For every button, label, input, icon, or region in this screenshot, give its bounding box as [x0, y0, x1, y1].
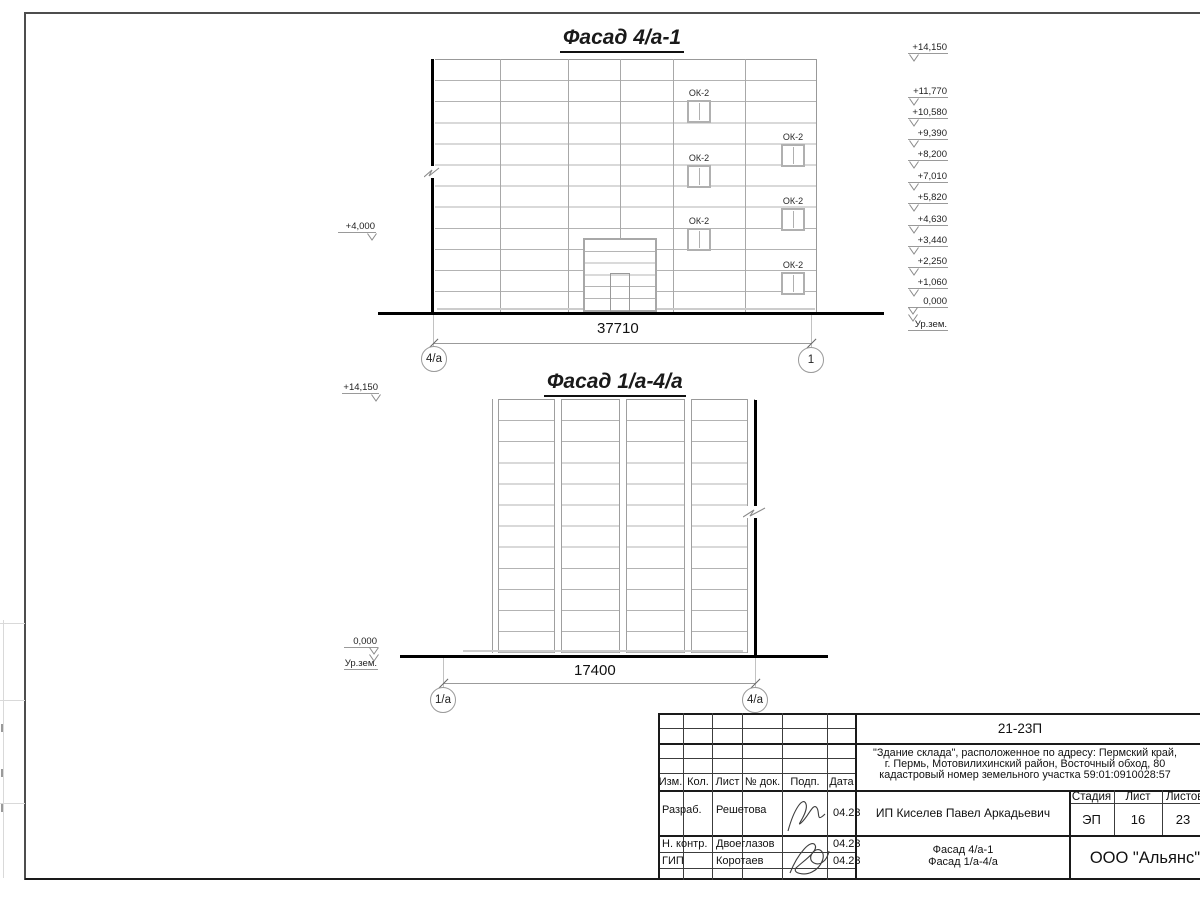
margin-stamp-text-mark [1, 769, 3, 777]
window-type-label: ОК-2 [683, 153, 715, 163]
elevation-mark: +5,820 [908, 193, 948, 212]
frame-top-border [25, 12, 1200, 14]
elevation-mark-left: +4,000 [338, 222, 376, 241]
col-izm: Изм. [658, 776, 683, 788]
margin-stamp-text-mark [1, 804, 3, 812]
facade1-title: Фасад 4/а-1 [560, 27, 684, 53]
col-list: Лист [713, 776, 742, 788]
window-ok2 [687, 228, 711, 251]
elevation-mark: +14,150 [908, 43, 948, 62]
signature-developer [784, 793, 828, 835]
window-type-label: ОК-2 [777, 196, 809, 206]
margin-stamp-text-mark [1, 724, 3, 732]
window-ok2 [687, 100, 711, 123]
window-type-label: ОК-2 [777, 260, 809, 270]
axis-marker-1: 1 [798, 347, 824, 373]
client-name: ИП Киселев Павел Аркадьевич [857, 806, 1069, 820]
facade1-dimension-line [433, 343, 812, 344]
facade1-column-line [745, 59, 746, 312]
facade2-corner-line [754, 400, 758, 508]
axis-marker-1a: 1/а [430, 687, 456, 713]
project-code: 21-23П [940, 721, 1100, 736]
margin-stamp-line [3, 620, 4, 878]
sheet-label: Лист [1114, 791, 1162, 803]
titleblock-line [712, 713, 713, 880]
role-name: Решетова [716, 804, 766, 816]
role-name: Двоеглазов [716, 838, 774, 850]
elevation-mark: +7,010 [908, 172, 948, 191]
elevation-mark: +1,060 [908, 278, 948, 297]
facade2-ground-line [400, 655, 828, 659]
facade2-corner-line [754, 518, 758, 656]
col-dok: № док. [743, 776, 782, 788]
sheet-title-line1: Фасад 4/а-1 [857, 844, 1069, 856]
facade2-top-elevation: +14,150 [342, 383, 379, 402]
elevation-mark: +11,770 [908, 87, 948, 106]
col-kol: Кол. [684, 776, 712, 788]
col-data: Дата [828, 776, 855, 788]
organization-name: ООО "Альянс" [1071, 849, 1200, 868]
window-type-label: ОК-2 [777, 132, 809, 142]
facade2-ground-label: Ур.зем. [344, 659, 378, 670]
break-symbol [743, 506, 767, 518]
elevation-mark: +10,580 [908, 108, 948, 127]
facade2-base-line [463, 650, 743, 652]
break-symbol [424, 166, 442, 178]
margin-stamp-line [0, 700, 25, 701]
window-type-label: ОК-2 [683, 216, 715, 226]
window-type-label: ОК-2 [683, 88, 715, 98]
window-ok2 [781, 272, 805, 295]
signature-control [785, 833, 831, 879]
facade2-dimension-value: 17400 [574, 662, 616, 679]
stage-label: Стадия [1069, 791, 1114, 803]
titleblock-line [1069, 803, 1200, 804]
axis-marker-4a: 4/а [742, 687, 768, 713]
project-description-line3: кадастровый номер земельного участка 59:… [862, 769, 1188, 781]
sheets-label: Листов [1166, 791, 1200, 803]
frame-left-border [24, 12, 26, 880]
facade2-column-strip [492, 399, 499, 653]
facade2-column-strip [684, 399, 692, 653]
facade1-column-line [500, 59, 501, 312]
facade1-door [610, 273, 630, 312]
role-label: ГИП [662, 855, 684, 867]
elevation-mark: +8,200 [908, 150, 948, 169]
stage-value: ЭП [1069, 812, 1114, 827]
margin-stamp-line [0, 803, 25, 804]
drawing-sheet: Фасад 4/а-1 ОК-2ОК-2ОК-2ОК-2ОК-2ОК-2 377… [0, 0, 1200, 900]
sheet-value: 16 [1114, 812, 1162, 827]
window-ok2 [781, 208, 805, 231]
elevation-mark: +9,390 [908, 129, 948, 148]
facade1-corner-line [431, 59, 435, 312]
margin-stamp-line [0, 623, 25, 624]
col-podp: Подп. [783, 776, 827, 788]
frame-bottom-border [25, 878, 1200, 880]
elevation-mark: +2,250 [908, 257, 948, 276]
facade1-ground-line [378, 312, 884, 316]
window-ok2 [687, 165, 711, 188]
sheets-value: 23 [1162, 812, 1200, 827]
facade2-dimension-line [443, 683, 755, 684]
role-name: Коротаев [716, 855, 764, 867]
facade1-column-line [568, 59, 569, 312]
titleblock-line [782, 713, 783, 880]
window-ok2 [781, 144, 805, 167]
titleblock-line [658, 713, 660, 880]
axis-marker-4a: 4/а [421, 346, 447, 372]
titleblock-line [658, 835, 1200, 837]
role-label: Разраб. [662, 804, 702, 816]
elevation-mark: +4,630 [908, 215, 948, 234]
facade1-dimension-value: 37710 [597, 320, 639, 337]
facade2-column-strip [619, 399, 627, 653]
elevation-mark: +3,440 [908, 236, 948, 255]
role-label: Н. контр. [662, 838, 707, 850]
facade1-ground-label: Ур.зем. [908, 320, 948, 331]
facade2-title: Фасад 1/а-4/а [544, 371, 686, 397]
sheet-title-line2: Фасад 1/а-4/а [857, 856, 1069, 868]
facade1-column-line [673, 59, 674, 312]
titleblock-line [658, 713, 1200, 715]
titleblock-line [658, 743, 1200, 745]
facade2-column-strip [554, 399, 562, 653]
